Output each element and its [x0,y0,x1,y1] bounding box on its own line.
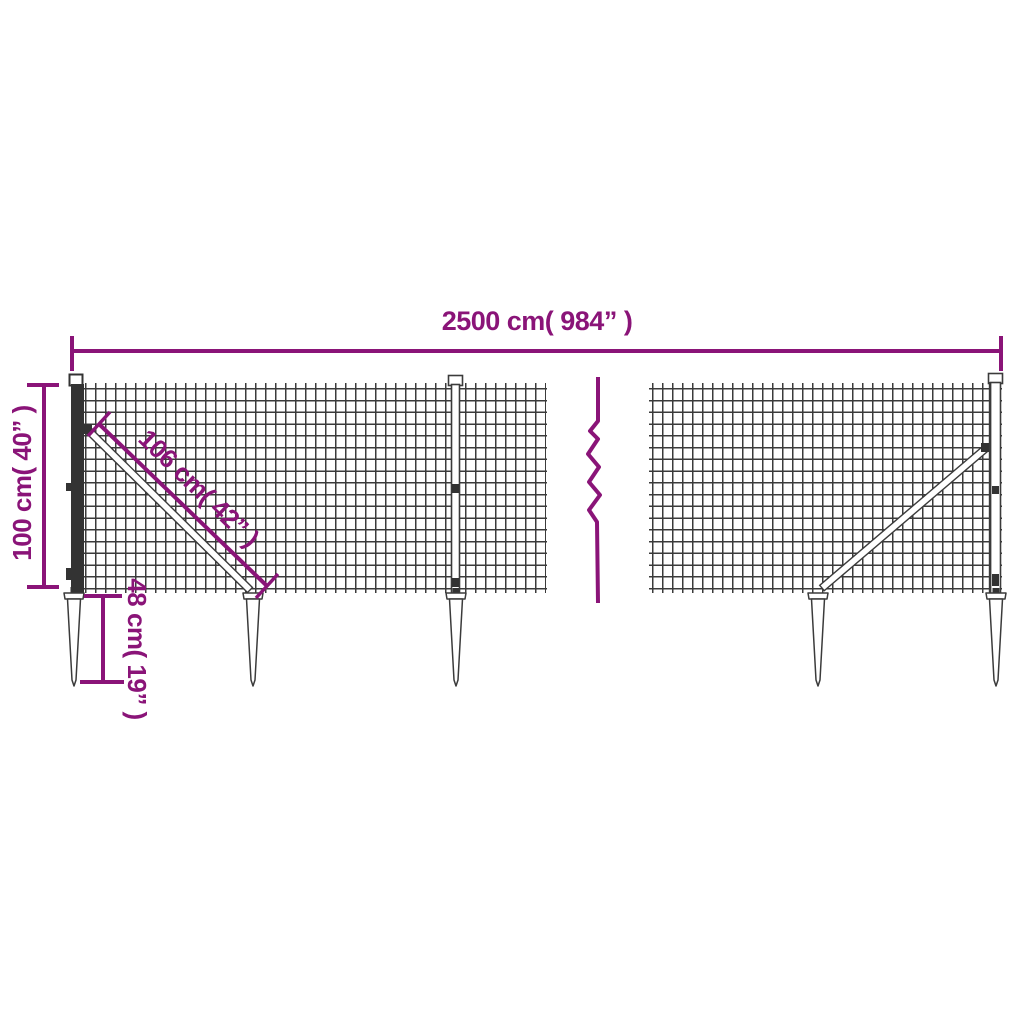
post-left [71,384,84,594]
total-length-label: 2500 cm( 984” ) [387,303,687,339]
fence-height-label: 100 cm( 40” ) [4,373,40,593]
post-left-clip [66,483,72,491]
ground-spike-collar [446,593,466,599]
brace-right [820,446,988,590]
spike-depth-dimension-tick [84,594,122,598]
ground-spike [450,599,463,686]
post-right-clip [992,486,999,494]
fence-dimension-diagram: 2500 cm( 984” ) 100 cm( 40” ) 106 cm( 42… [0,0,1024,1024]
total-length-dimension-tick [999,336,1003,371]
break-symbol [588,377,600,603]
post-right-clip [992,574,999,586]
ground-spike-collar [808,593,828,599]
post-middle-clip [452,484,459,493]
fence-hardware-layer [0,0,1024,1024]
total-length-dimension-line [71,349,1002,353]
spike-depth-dimension-tick [80,680,124,684]
ground-spike [812,599,825,686]
ground-spike-collar [64,593,84,599]
post-middle-clip [452,578,459,587]
ground-spike [247,599,260,686]
post-left-cap [70,375,83,386]
ground-spike [990,599,1003,686]
spike-depth-label: 48 cm( 19” ) [120,564,154,734]
ground-spike-collar [986,593,1006,599]
fence-height-dimension-line [42,384,46,589]
ground-spike [68,599,81,686]
total-length-dimension-tick [70,336,74,371]
post-left-clip [66,568,73,580]
spike-depth-dimension-line [101,596,105,683]
